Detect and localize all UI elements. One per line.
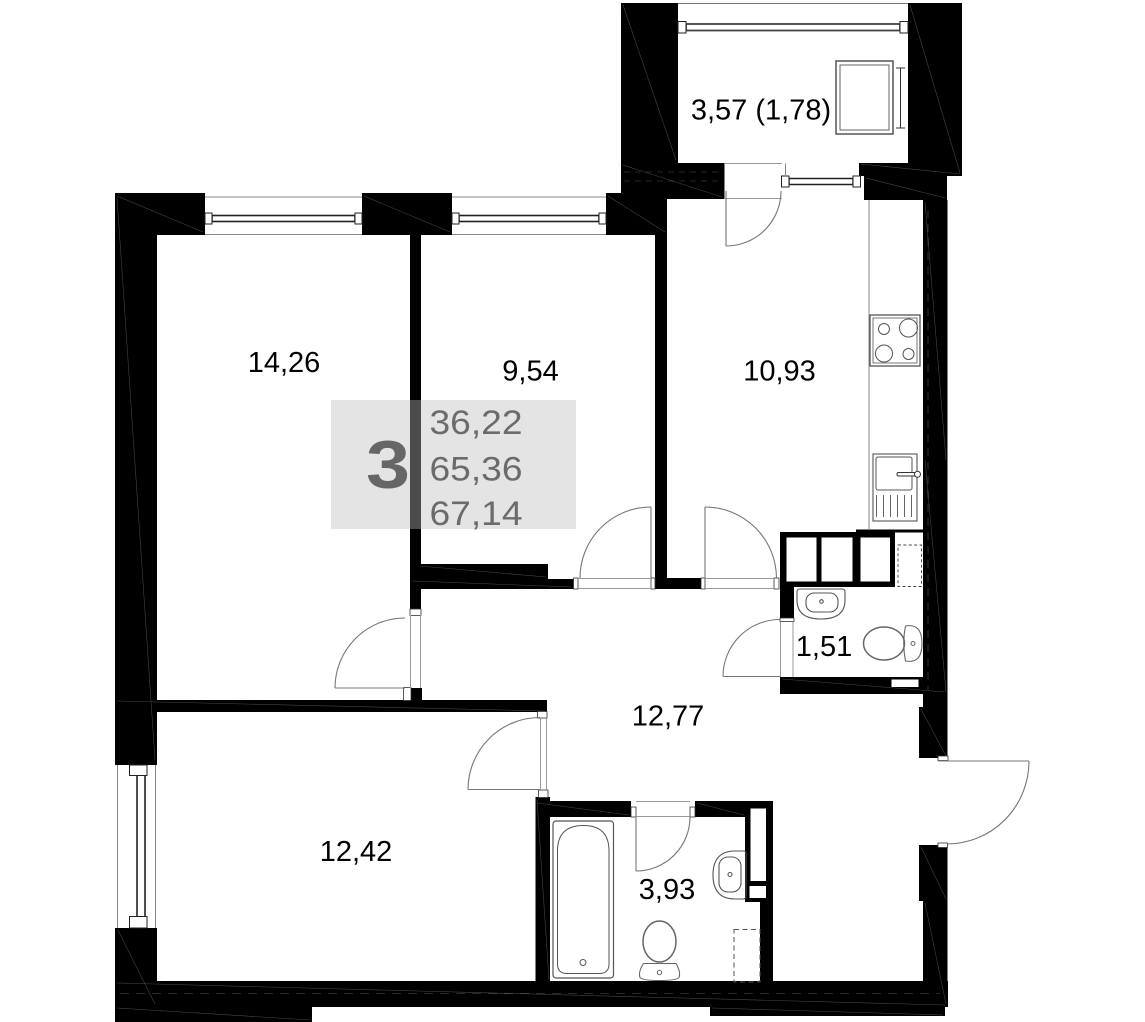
svg-text:9,54: 9,54: [502, 356, 558, 388]
svg-text:3,93: 3,93: [639, 874, 695, 906]
svg-text:36,22: 36,22: [430, 404, 523, 442]
svg-text:3,57 (1,78): 3,57 (1,78): [691, 95, 831, 127]
svg-text:1,51: 1,51: [796, 631, 852, 663]
svg-text:12,77: 12,77: [632, 701, 705, 733]
svg-text:67,14: 67,14: [430, 495, 523, 533]
svg-text:3: 3: [366, 427, 410, 503]
svg-text:65,36: 65,36: [430, 451, 523, 489]
svg-text:12,42: 12,42: [320, 836, 393, 868]
svg-text:10,93: 10,93: [743, 356, 816, 388]
svg-text:14,26: 14,26: [248, 347, 321, 379]
